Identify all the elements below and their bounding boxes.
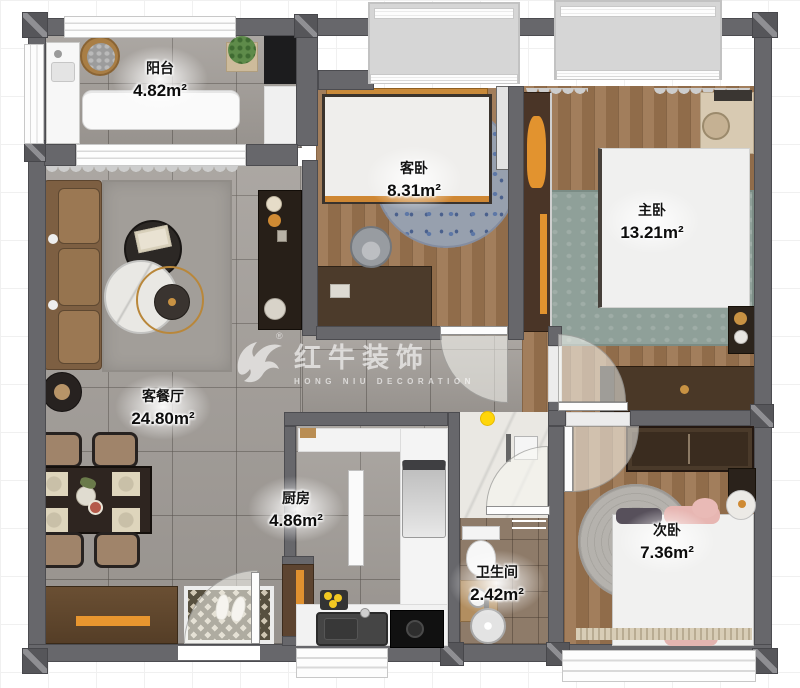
sofa-pillow xyxy=(48,300,58,310)
guest-desk-paper xyxy=(330,284,350,298)
room-label-second-bedroom: 次卧 7.36m² xyxy=(607,520,727,563)
master-door-leaf xyxy=(558,402,628,411)
kitchen-window xyxy=(296,648,388,678)
room-name: 主卧 xyxy=(592,200,712,220)
balcony-living-window xyxy=(76,144,246,166)
floor-plan: ® 红牛装饰 HONG NIU DECORATION 阳台 4.82m² 客卧 … xyxy=(0,0,800,688)
guest-desk-chair xyxy=(350,226,392,268)
guest-bay-band xyxy=(374,8,514,19)
master-bay-sill xyxy=(556,70,720,80)
tray-gold-knob xyxy=(168,298,176,306)
wall-joint xyxy=(752,12,778,38)
tv-cabinet-frame xyxy=(277,230,287,242)
room-name: 厨房 xyxy=(236,488,356,508)
bull-logo-icon xyxy=(230,333,286,389)
room-area: 24.80m² xyxy=(103,409,223,429)
wall-guest-master xyxy=(508,86,524,340)
sofa-cushion xyxy=(58,188,100,244)
shoe-cabinet-accent xyxy=(76,616,150,626)
wall-kitchen-bathroom xyxy=(448,412,460,648)
label-halo xyxy=(366,146,462,212)
label-halo xyxy=(619,508,715,574)
stove-burner xyxy=(406,620,424,638)
second-wardrobe-handle xyxy=(688,434,690,464)
label-halo xyxy=(449,550,545,616)
room-name: 卫生间 xyxy=(437,562,557,582)
entry-door-leaf xyxy=(251,572,260,644)
master-monitor xyxy=(714,90,752,101)
wall-joint xyxy=(294,14,318,38)
dining-chair xyxy=(92,432,138,468)
sofa-cushion xyxy=(58,310,100,364)
master-desk-chair xyxy=(702,112,730,140)
master-bay-band xyxy=(560,6,716,17)
wall-balcony-bottom-right xyxy=(246,144,298,166)
label-halo xyxy=(112,46,208,112)
watermark-brand: 红牛装饰 xyxy=(294,336,475,375)
second-wardrobe xyxy=(626,426,754,472)
balcony-left-window xyxy=(24,44,44,144)
second-door-threshold xyxy=(566,412,630,426)
second-runner-rug xyxy=(576,628,752,640)
tv-cabinet-bowl xyxy=(268,214,281,227)
nightstand-lamp xyxy=(734,330,748,344)
laundry-sink-unit xyxy=(46,42,80,144)
wall-master-second-left xyxy=(548,410,566,426)
wall-balcony-bottom-left xyxy=(44,144,76,166)
tv-cabinet-vase xyxy=(266,196,282,212)
room-area: 13.21m² xyxy=(592,223,712,243)
room-area: 8.31m² xyxy=(354,181,474,201)
watermark-subtitle: HONG NIU DECORATION xyxy=(294,377,475,386)
label-halo xyxy=(248,476,344,542)
side-table-top xyxy=(54,384,70,400)
guest-bay-sill xyxy=(370,74,518,84)
wall-right xyxy=(754,18,772,662)
center-plate xyxy=(88,500,103,515)
tv-cabinet-decor xyxy=(264,298,286,320)
sofa-pillow xyxy=(48,234,58,244)
room-name: 客餐厅 xyxy=(103,386,223,406)
bathroom-door-leaf xyxy=(486,506,550,515)
wall-living-guest xyxy=(302,160,318,336)
balcony-plant xyxy=(228,36,256,64)
room-label-master-bedroom: 主卧 13.21m² xyxy=(592,200,712,243)
wall-joint xyxy=(22,648,48,674)
sink-basin xyxy=(324,618,358,640)
laundry-faucet xyxy=(54,50,62,58)
label-halo xyxy=(604,188,700,254)
room-area: 2.42m² xyxy=(437,585,557,605)
watermark: ® 红牛装饰 HONG NIU DECORATION xyxy=(230,330,480,392)
kitchen-cutting-board xyxy=(300,428,316,438)
toilet-tank xyxy=(462,526,500,540)
room-area: 4.86m² xyxy=(236,511,356,531)
laundry-sink-basin xyxy=(51,62,75,82)
registered-mark: ® xyxy=(276,331,283,341)
guest-desk xyxy=(316,266,432,330)
fridge xyxy=(402,460,446,538)
dresser-knob xyxy=(680,385,689,394)
wardrobe-accent-strip xyxy=(540,214,547,314)
nightstand-gold-decor xyxy=(734,312,747,325)
wall-guest-top-offset xyxy=(318,70,374,90)
room-label-guest-bedroom: 客卧 8.31m² xyxy=(354,158,474,201)
place-mat xyxy=(112,508,140,532)
room-label-balcony: 阳台 4.82m² xyxy=(100,58,220,101)
wall-bathroom-second xyxy=(548,426,564,648)
sofa-cushion xyxy=(58,248,100,306)
room-area: 7.36m² xyxy=(607,543,727,563)
place-mat xyxy=(112,472,140,496)
towel-rail xyxy=(512,520,546,529)
entry-opening xyxy=(178,646,260,660)
highlight-dot xyxy=(480,411,495,426)
lemon xyxy=(329,600,337,608)
label-halo xyxy=(115,374,211,440)
wall-joint xyxy=(750,404,774,428)
wardrobe-garment-orange xyxy=(527,116,546,188)
balcony-top-window xyxy=(64,16,236,38)
room-name: 客卧 xyxy=(354,158,474,178)
wall-kitchen-top xyxy=(284,412,448,426)
second-bedroom-window xyxy=(562,650,756,682)
sink-faucet xyxy=(360,608,370,618)
room-label-kitchen: 厨房 4.86m² xyxy=(236,488,356,531)
second-door-leaf xyxy=(564,426,573,492)
room-label-living-dining: 客餐厅 24.80m² xyxy=(103,386,223,429)
room-label-bathroom: 卫生间 2.42m² xyxy=(437,562,557,605)
room-area: 4.82m² xyxy=(100,81,220,101)
dining-chair xyxy=(94,532,140,568)
room-name: 次卧 xyxy=(607,520,727,540)
wall-joint xyxy=(22,12,48,38)
lemon xyxy=(324,592,332,600)
lamp-amber-dot xyxy=(738,500,746,508)
shoe-cabinet xyxy=(32,586,178,644)
watermark-logo: ® xyxy=(230,333,286,389)
living-curtain xyxy=(46,166,238,175)
room-name: 阳台 xyxy=(100,58,220,78)
watermark-text: 红牛装饰 HONG NIU DECORATION xyxy=(294,336,475,386)
